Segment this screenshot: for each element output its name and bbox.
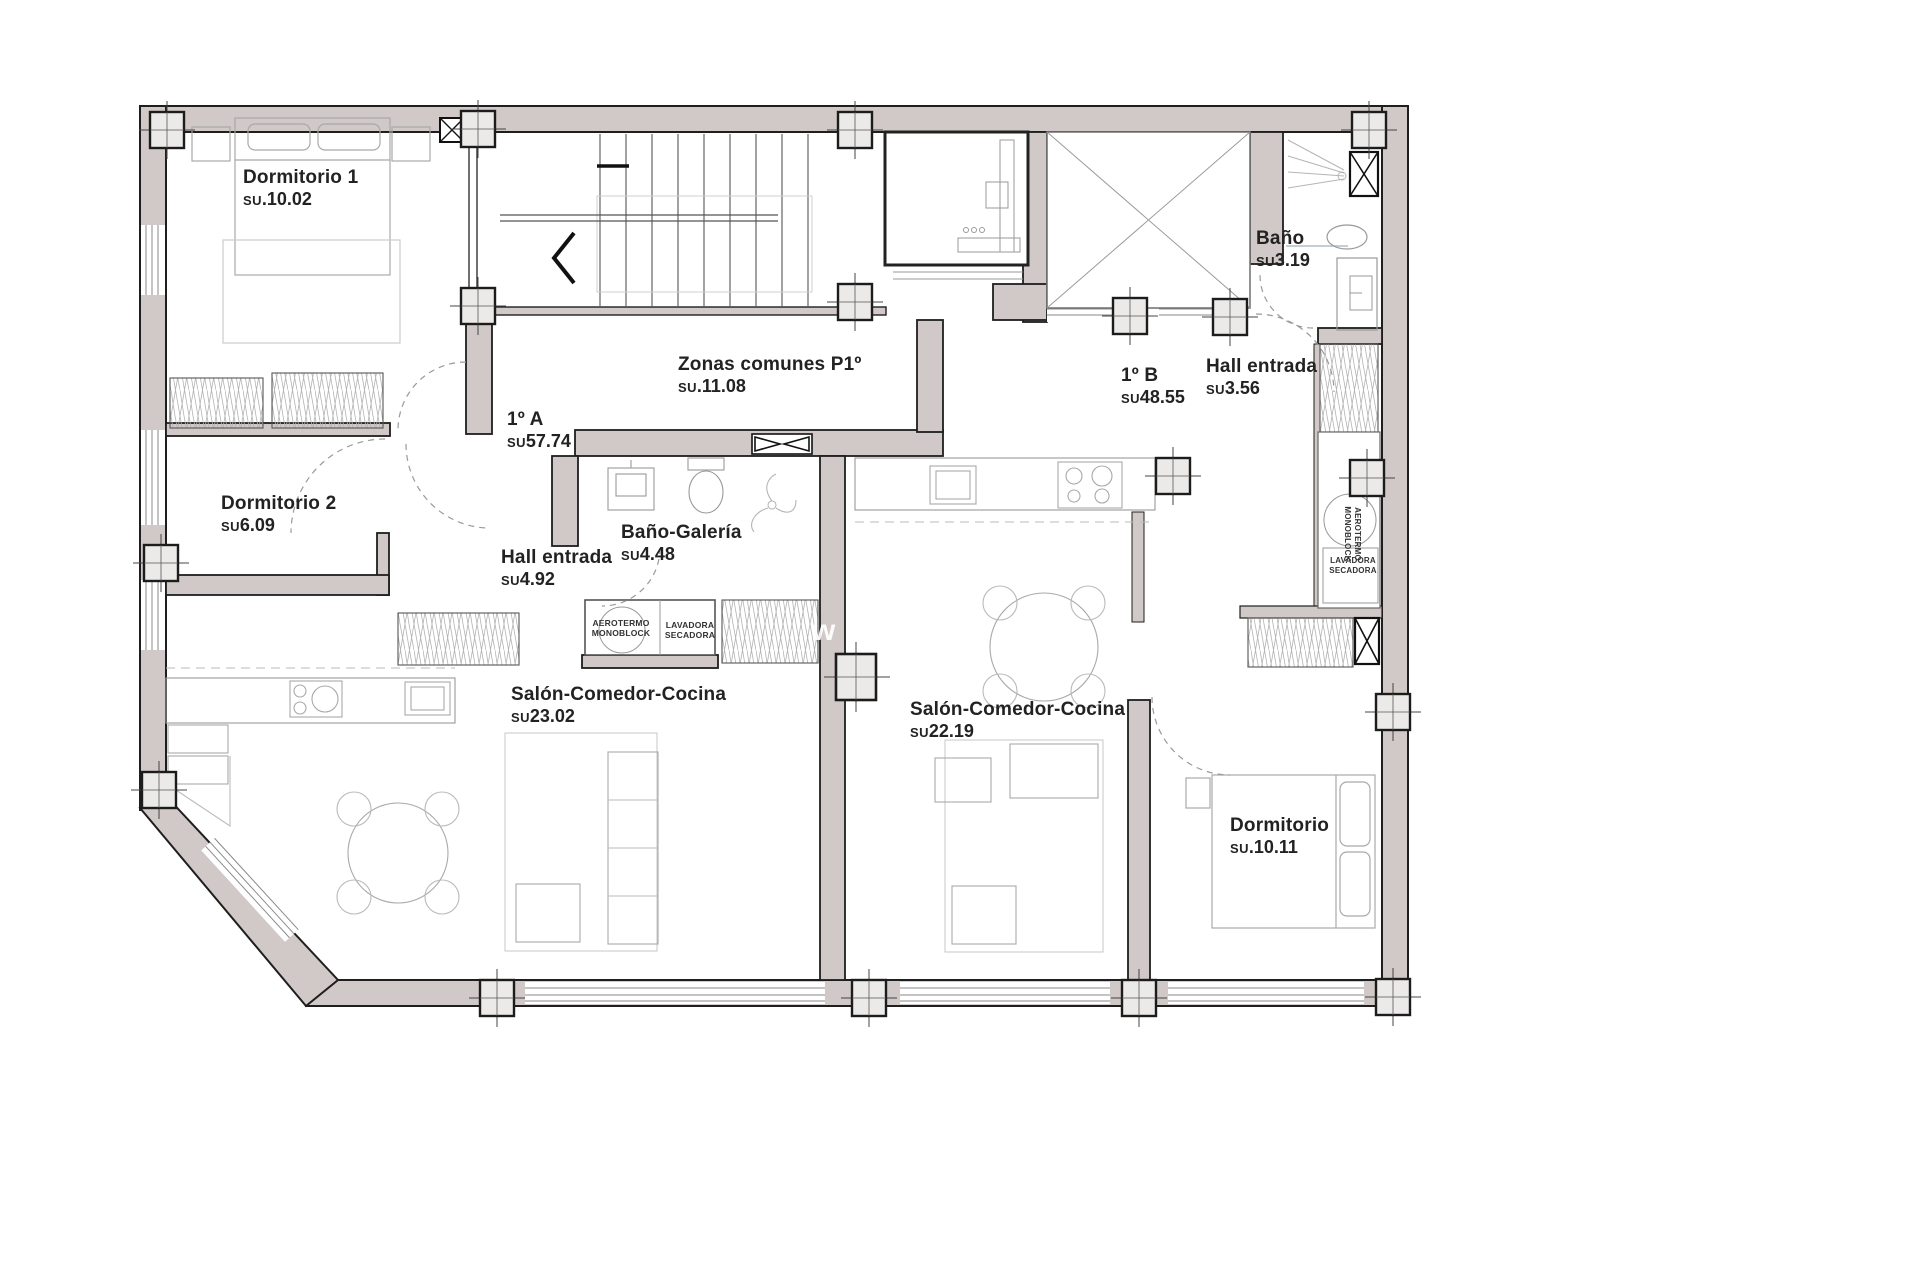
room-label-salon-1b: Salón-Comedor-Cocina SU22.19	[910, 700, 1125, 741]
lavadora-label: LAVADORA SECADORA	[663, 620, 717, 640]
wardrobe-hatch	[398, 613, 519, 665]
staircase	[500, 134, 812, 306]
shower-icon	[1288, 140, 1344, 188]
stove-icon	[290, 681, 342, 717]
door-arc-bano-1b	[1260, 275, 1313, 328]
vent-box-bathroom-icon	[1350, 152, 1378, 196]
stair-direction-arrow-icon	[554, 233, 574, 283]
elevator-shaft	[1047, 132, 1250, 308]
room-label-bano-1b: Baño SU3.19	[1256, 229, 1310, 270]
room-label-dormitorio-1: Dormitorio 1 SU.10.02	[243, 168, 358, 209]
room-label-dormitorio-1b: Dormitorio SU.10.11	[1230, 816, 1329, 857]
room-label-bano-galeria: Baño-Galería SU4.48	[621, 523, 742, 564]
wardrobe-hatch	[1248, 618, 1353, 667]
vent-shaft-icon	[1355, 618, 1379, 664]
bano-galeria-fixtures	[608, 458, 796, 532]
watermark: w	[812, 614, 835, 648]
room-label-1a: 1º A SU57.74	[507, 410, 571, 451]
rug	[945, 740, 1103, 952]
wardrobe-hatch	[170, 378, 263, 428]
vent-bowtie-icon	[752, 434, 812, 454]
room-label-hall-1b: Hall entrada SU3.56	[1206, 357, 1317, 398]
dining-table-icon	[990, 593, 1098, 701]
armchair-icon	[952, 886, 1016, 944]
stove-icon	[1058, 462, 1122, 508]
machine-room	[885, 132, 1028, 279]
armchair-icon	[935, 758, 991, 802]
rug	[505, 733, 657, 951]
wardrobe-hatch	[272, 373, 383, 428]
door-arc-dorm1	[398, 362, 466, 430]
lavadora-label-right: LAVADORA SECADORA	[1326, 556, 1380, 575]
wardrobe-hatch	[722, 600, 818, 663]
nightstand-icon	[1186, 778, 1210, 808]
floor-plan-page: Dormitorio 1 SU.10.02 Zonas comunes P1º …	[0, 0, 1920, 1280]
sofa-icon	[1010, 744, 1098, 798]
bedroom1-furniture	[170, 118, 430, 428]
thin-partition	[469, 147, 477, 288]
aerotermo-label: AEROTERMO MONOBLOCK	[588, 618, 654, 638]
door-arc-dorm-1b	[1152, 697, 1230, 775]
toilet-icon	[688, 458, 724, 470]
rug	[223, 240, 400, 343]
dining-table-icon	[348, 803, 448, 903]
room-label-zonas-comunes: Zonas comunes P1º SU.11.08	[678, 355, 862, 396]
room-label-dormitorio-2: Dormitorio 2 SU6.09	[221, 494, 336, 535]
door-swings	[291, 275, 1334, 775]
toilet-icon	[1337, 258, 1377, 330]
fan-icon	[752, 474, 796, 532]
closet-hatch	[1320, 344, 1378, 432]
room-label-1b: 1º B SU48.55	[1121, 366, 1185, 407]
door-arc-1a-entry	[406, 444, 490, 528]
room-label-salon-1a: Salón-Comedor-Cocina SU23.02	[511, 685, 726, 726]
room-label-hall-1a: Hall entrada SU4.92	[501, 548, 612, 589]
appliance	[168, 725, 228, 753]
kitchen-sink-icon	[930, 466, 976, 504]
armchair-icon	[516, 884, 580, 942]
